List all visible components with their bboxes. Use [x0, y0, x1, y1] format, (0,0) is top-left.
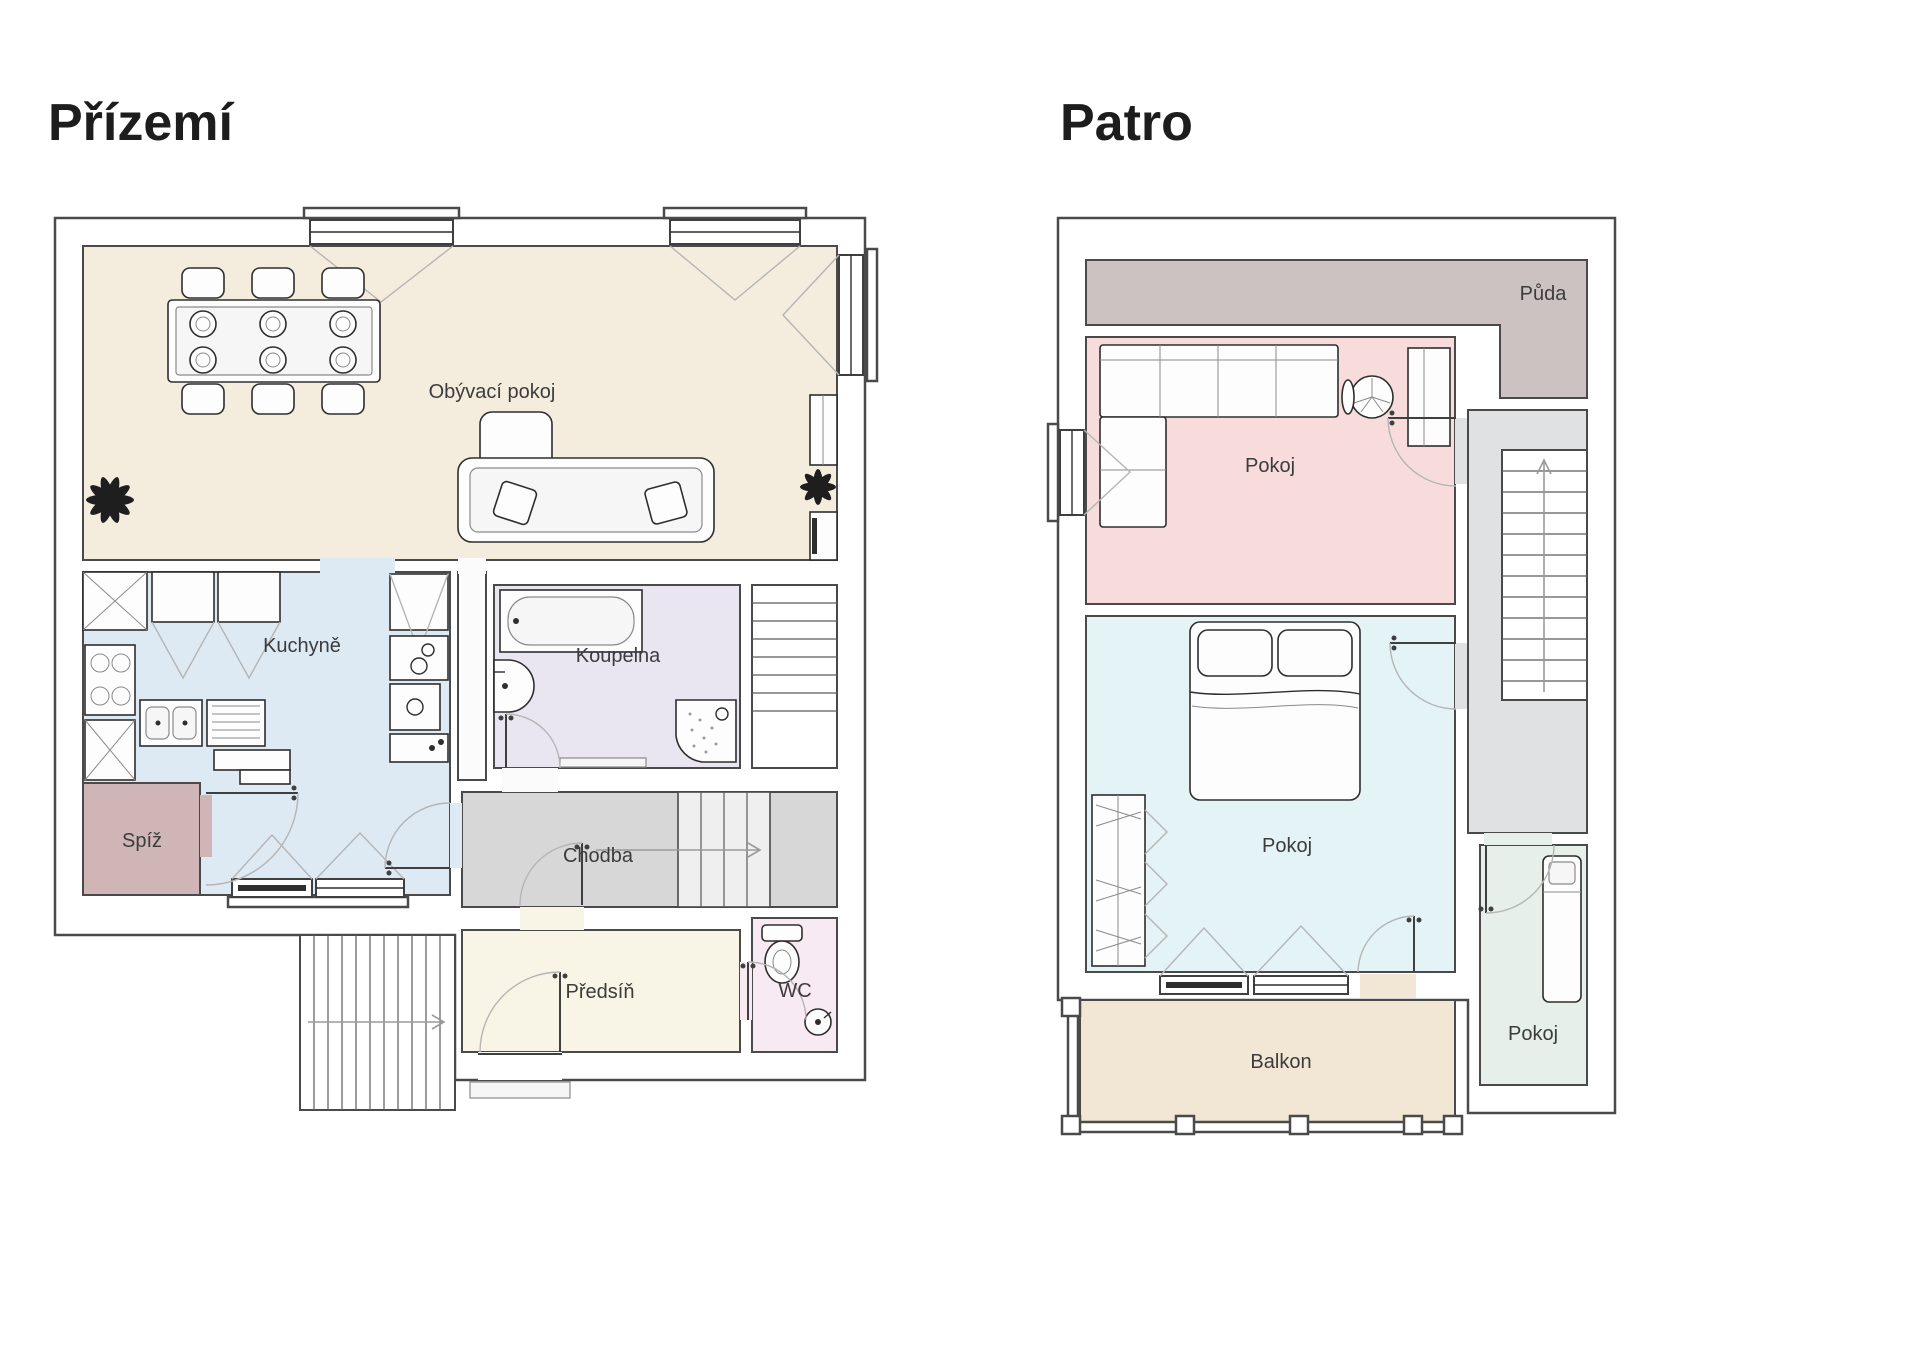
balcony-railing-left — [1068, 1004, 1078, 1126]
room-label-bathroom: Koupelna — [576, 645, 661, 667]
room-label-entry: Předsíň — [566, 981, 635, 1003]
room-label-living: Obývací pokoj — [429, 381, 556, 403]
bath-mat — [560, 758, 646, 767]
upper-floor-title: Patro — [1060, 94, 1193, 152]
desk-chair — [1342, 376, 1393, 418]
double-bed — [1190, 622, 1360, 800]
plant-icon-right — [800, 469, 836, 505]
desk — [1408, 348, 1450, 446]
toilet — [762, 925, 802, 983]
stove — [85, 645, 135, 715]
deck-stairs — [300, 935, 455, 1110]
room-label-kitchen: Kuchyně — [263, 635, 341, 657]
ground-floor-title: Přízemí — [48, 94, 235, 152]
opening-living-corridor — [458, 558, 486, 574]
oven — [390, 684, 440, 730]
floorplan-canvas: Přízemí — [0, 0, 1920, 1360]
room-label-pantry: Spíž — [122, 830, 162, 852]
room-label-green: Pokoj — [1508, 1023, 1558, 1045]
entry-step — [470, 1082, 570, 1098]
fridge — [390, 574, 448, 630]
room-label-balcony: Balkon — [1250, 1051, 1311, 1073]
single-bed — [1543, 856, 1581, 1002]
room-label-pink: Pokoj — [1245, 455, 1295, 477]
shower — [676, 700, 736, 762]
room-label-wc: WC — [778, 980, 811, 1002]
room-label-attic: Půda — [1520, 283, 1568, 305]
room-label-hallway: Chodba — [563, 845, 634, 867]
opening-living-kitchen — [320, 558, 395, 574]
room-label-cyan: Pokoj — [1262, 835, 1312, 857]
stairs-upper-flight — [752, 585, 837, 768]
bathtub — [500, 590, 642, 652]
balcony-railing-bottom — [1068, 1122, 1458, 1132]
upper-floor-plan: Patro Půda — [1048, 94, 1615, 1134]
wc-sink — [805, 1009, 831, 1035]
dishwasher — [207, 700, 265, 746]
stairs-upper-floor — [1502, 450, 1587, 700]
ground-floor-plan: Přízemí — [48, 94, 877, 1110]
corridor-strip — [458, 572, 486, 780]
